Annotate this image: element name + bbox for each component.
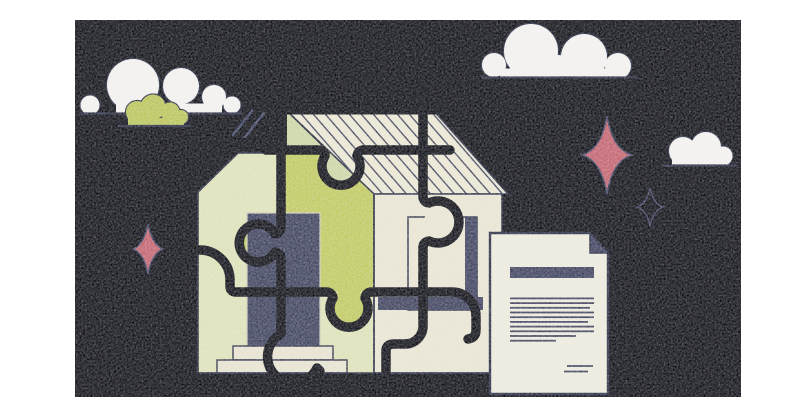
grain-overlay — [75, 20, 741, 397]
puzzle-house-illustration — [0, 0, 800, 420]
illustration-stage — [0, 0, 800, 420]
